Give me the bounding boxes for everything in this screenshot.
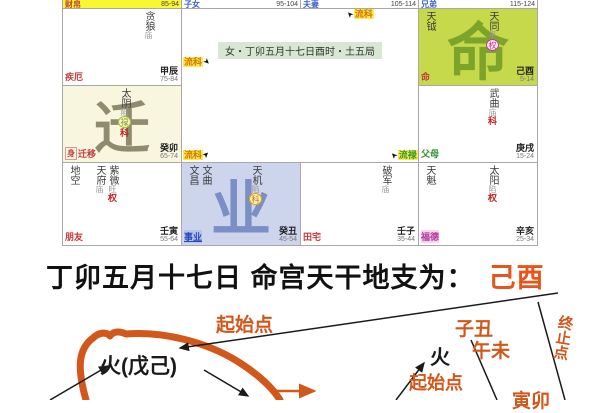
flow-ke-label-left[interactable]: 流科➤	[183, 57, 210, 67]
flow-ke-label-top[interactable]: ➤流科	[347, 9, 374, 19]
age-range: 85-94	[161, 1, 179, 9]
star-brightness: 陷	[488, 185, 497, 193]
star-group: 地空	[66, 165, 91, 185]
palace-name: 兄弟	[421, 0, 437, 9]
black-arrow-from-fire-main	[204, 370, 248, 396]
star-name: 天机	[250, 165, 261, 185]
star-brightness: 旺	[108, 185, 117, 193]
star-brightness: 平	[488, 31, 497, 39]
star-group: 太阴陷禄科	[117, 88, 178, 137]
stem-branch: 癸丑	[279, 226, 297, 236]
palace-cell-shiye[interactable]: 业 文昌 文曲 天机陷科 事业 癸丑45-54	[182, 163, 301, 246]
star-brightness: 陷	[120, 108, 129, 116]
age-range: 45-54	[279, 236, 297, 244]
hand-drawn-annotation	[0, 250, 600, 400]
palace-name: 子女	[184, 0, 200, 9]
palace-name: 田宅	[303, 230, 321, 243]
star-group: 天魁	[422, 165, 447, 185]
stem-branch: 辛亥	[516, 226, 534, 236]
star-group: 文昌 文曲	[185, 165, 235, 185]
palace-name: 父母	[421, 147, 439, 160]
flow-transform: 科	[487, 116, 497, 125]
star-brightness: 陷	[251, 185, 260, 193]
star-group: 太阳陷权	[485, 165, 534, 202]
age-range: 25-34	[516, 236, 534, 244]
palace-cell-qianyi[interactable]: 迁 太阴陷禄科 身迁移 癸卯65-74	[63, 86, 182, 163]
stem-branch: 己酉	[516, 66, 534, 76]
age-range: 35-44	[397, 236, 415, 244]
star-group: 贪狼庙	[141, 11, 178, 39]
birth-transform-badge: 禄	[118, 116, 131, 128]
palace-cell-fude[interactable]: 天魁 太阳陷权 福德 辛亥25-34	[419, 163, 538, 246]
star-group: 破军庙	[378, 165, 415, 193]
age-range: 95-104	[276, 1, 298, 9]
star-group: 武曲庙科	[485, 88, 534, 125]
star-name: 文曲	[200, 165, 211, 185]
star-name: 天府	[94, 165, 105, 185]
palace-cell-zinv[interactable]: 子女 95-104	[182, 0, 301, 9]
palace-cell-pengyou[interactable]: 地空 天府庙 紫微旺权 朋友 壬寅55-64	[63, 163, 182, 246]
flow-lu-label[interactable]: ➤流禄	[391, 150, 418, 160]
palace-cell-ming[interactable]: 命 天钺 天同平权 命 己酉5-14	[419, 9, 538, 86]
star-brightness: 庙	[381, 185, 390, 193]
star-group: 天机陷科	[248, 165, 297, 205]
flow-transform: 权	[107, 193, 117, 202]
star-name: 天魁	[424, 165, 435, 185]
age-range: 15-24	[516, 153, 534, 161]
age-range: 65-74	[160, 153, 178, 161]
stem-branch: 庚戌	[516, 143, 534, 153]
stem-branch: 甲辰	[160, 66, 178, 76]
age-range: 75-84	[160, 76, 178, 84]
palace-name: 朋友	[65, 230, 83, 243]
star-brightness: 庙	[144, 31, 153, 39]
start-point-label-2: 起始点	[409, 369, 463, 395]
star-brightness: 庙	[95, 185, 104, 193]
flow-transform: 科	[119, 128, 129, 137]
star-group: 天府庙 紫微旺权	[92, 165, 178, 202]
palace-cell-fumu[interactable]: 武曲庙科 父母 庚戌15-24	[419, 86, 538, 163]
star-name: 破军	[380, 165, 391, 185]
star-name: 紫微	[107, 165, 118, 185]
star-name: 天同	[487, 11, 498, 31]
stem-branch: 癸卯	[160, 143, 178, 153]
age-range: 115-124	[510, 1, 535, 9]
star-name: 太阳	[487, 165, 498, 185]
star-group: 天同平权	[485, 11, 534, 51]
birth-transform-badge: 科	[249, 193, 262, 205]
palace-name: 事业	[184, 230, 202, 243]
age-range: 5-14	[516, 76, 534, 84]
star-name: 贪狼	[143, 11, 154, 31]
palace-name: 迁移	[78, 147, 96, 160]
body-palace-badge: 身	[65, 147, 77, 160]
palace-name: 疾厄	[65, 70, 83, 83]
fire-wuji-label: 火(戊己)	[100, 350, 177, 380]
palace-name: 夫妻	[303, 0, 319, 9]
age-range: 105-114	[391, 1, 416, 9]
star-name: 文昌	[187, 165, 198, 185]
ziwei-chart: 财帛 85-94 子女 95-104 夫妻 105-114 兄弟 115-124…	[62, 0, 538, 246]
age-range: 55-64	[160, 236, 178, 244]
palace-cell-caibo[interactable]: 财帛 85-94	[63, 0, 182, 9]
star-name: 天钺	[424, 11, 435, 31]
palace-cell-fuqi[interactable]: 夫妻 105-114	[301, 0, 419, 9]
palace-cell-xiongdi[interactable]: 兄弟 115-124	[419, 0, 538, 9]
birth-transform-badge: 权	[486, 39, 499, 51]
palace-name: 命	[421, 70, 430, 83]
birth-info-badge: 女・丁卯五月十七日酉时・土五局	[218, 42, 382, 59]
star-name: 太阴	[119, 88, 130, 108]
palace-cell-tianzhai[interactable]: 破军庙 田宅 壬子35-44	[301, 163, 419, 246]
chart-center-info: 女・丁卯五月十七日酉时・土五局	[182, 9, 419, 163]
stem-branch: 壬寅	[160, 226, 178, 236]
palace-name: 财帛	[65, 0, 81, 9]
palace-name: 福德	[421, 230, 439, 243]
palace-cell-jie[interactable]: 贪狼庙 疾厄 甲辰75-84	[63, 9, 182, 86]
star-name: 武曲	[487, 88, 498, 108]
stem-branch: 壬子	[397, 226, 415, 236]
star-group: 天钺	[422, 11, 447, 31]
fire-label-2: 火	[430, 341, 450, 370]
page: { "colors":{ "accent_orange":"#d2571a","…	[0, 0, 600, 400]
flow-ke-label-bottom[interactable]: 流科➤	[183, 150, 210, 160]
start-point-label-1: 起始点	[216, 310, 273, 337]
flow-transform: 权	[487, 193, 497, 202]
wuwei-label: 午未	[472, 336, 510, 363]
star-name: 地空	[68, 165, 79, 185]
star-brightness: 庙	[488, 108, 497, 116]
